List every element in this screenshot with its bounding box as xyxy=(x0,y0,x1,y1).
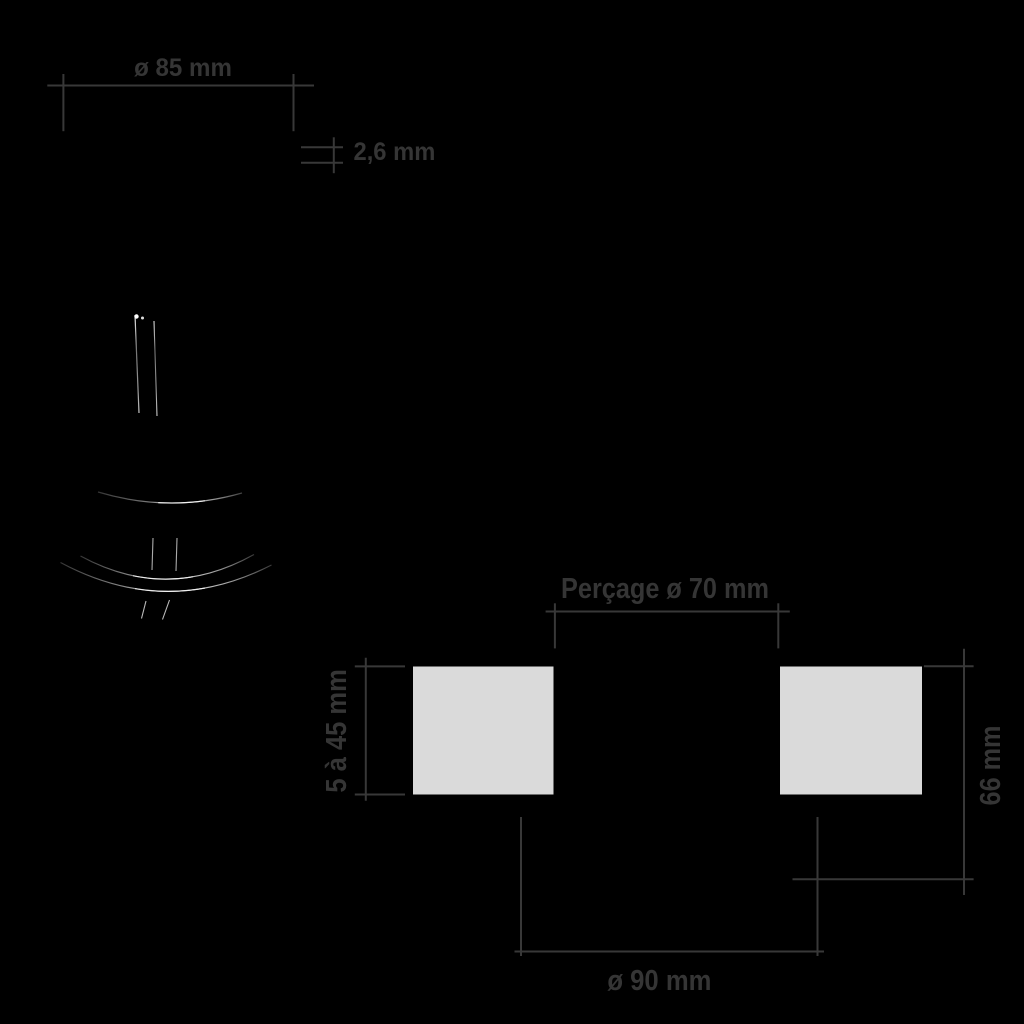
svg-text:ø 85 mm: ø 85 mm xyxy=(134,55,232,82)
svg-text:ø 90 mm: ø 90 mm xyxy=(607,964,711,997)
svg-text:2,6 mm: 2,6 mm xyxy=(354,138,436,166)
svg-text:5 à 45 mm: 5 à 45 mm xyxy=(320,669,353,792)
svg-text:66 mm: 66 mm xyxy=(973,726,1006,806)
svg-text:Perçage ø 70 mm: Perçage ø 70 mm xyxy=(561,571,769,604)
